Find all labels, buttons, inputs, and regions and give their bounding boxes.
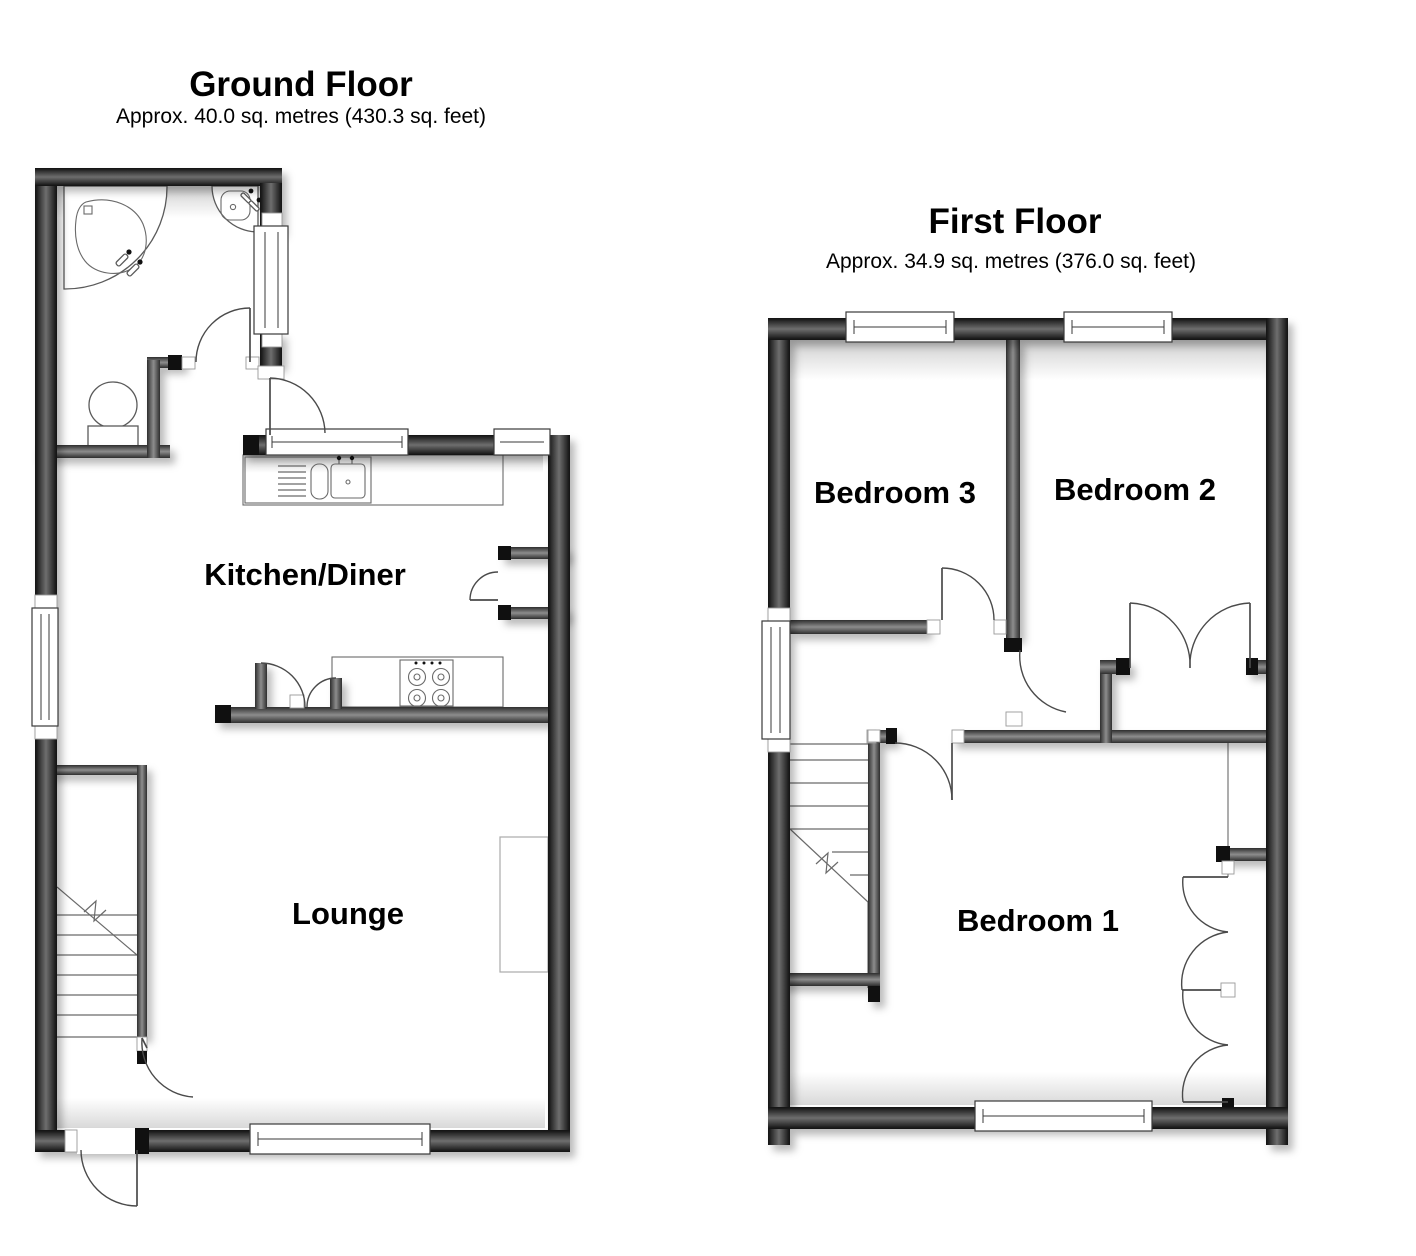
- side-window: [32, 608, 58, 726]
- first-doors: [895, 568, 1250, 1102]
- ground-floor-plan: Ground Floor Approx. 40.0 sq. metres (43…: [32, 65, 570, 1206]
- ground-floor-subtitle: Approx. 40.0 sq. metres (430.3 sq. feet): [116, 105, 486, 128]
- ground-windows: [32, 213, 550, 1154]
- shade-strip: [243, 455, 543, 473]
- bedroom1-door-swing: [895, 743, 952, 800]
- bedroom2-wardrobe-doors: [1130, 603, 1250, 668]
- burner-center: [438, 674, 444, 680]
- window-jamb: [262, 334, 282, 347]
- wall-cap-white: [868, 730, 880, 742]
- lounge-door-swing: [142, 1038, 193, 1097]
- wall-cap: [868, 986, 880, 1002]
- bedroom3-door-swing: [942, 568, 994, 620]
- window-jamb: [768, 739, 790, 752]
- cupboard-door-swing: [470, 572, 498, 600]
- wall-cap: [215, 705, 231, 723]
- door-post: [330, 678, 342, 709]
- window-jamb: [262, 213, 282, 226]
- wall-cap: [886, 728, 897, 744]
- bedroom2-door-swing: [1020, 650, 1066, 712]
- first-floor-subtitle: Approx. 34.9 sq. metres (376.0 sq. feet): [826, 250, 1196, 273]
- door-jamb: [927, 620, 940, 634]
- tap-dot: [249, 189, 254, 194]
- sink-drain: [346, 480, 350, 484]
- bathroom-door-swing: [196, 308, 250, 362]
- ground-wall-details: [65, 355, 511, 1154]
- room-label-bedroom1: Bedroom 1: [957, 903, 1119, 938]
- burner: [433, 669, 450, 686]
- wall-north: [35, 168, 282, 186]
- wall-cap: [1246, 658, 1258, 675]
- wall-wc-east: [147, 360, 160, 458]
- hob-dot: [439, 662, 442, 665]
- fireplace: [500, 837, 548, 972]
- back-door-swing: [270, 378, 325, 433]
- ground-exterior-walls: [35, 168, 570, 1152]
- wall-east: [548, 435, 570, 1152]
- wall-cap: [1116, 658, 1130, 675]
- wall-cap: [498, 605, 511, 620]
- shade-strip: [790, 340, 1266, 380]
- ground-floor-title: Ground Floor: [189, 65, 413, 104]
- window-jamb: [768, 608, 790, 621]
- hob-dot: [415, 662, 418, 665]
- door-jamb: [258, 366, 284, 379]
- wall-kitchen-lounge: [215, 707, 548, 723]
- wall-bed3-bed2: [1006, 340, 1020, 638]
- burner: [409, 669, 426, 686]
- burner-center: [414, 674, 420, 680]
- landing-wall: [780, 973, 880, 986]
- corner-basin: [212, 186, 261, 232]
- front-door-opening: [77, 1128, 135, 1154]
- burner: [409, 690, 426, 707]
- door-jamb: [246, 357, 259, 369]
- door-post: [255, 663, 267, 709]
- shade-strip: [790, 1072, 1266, 1105]
- door-jamb: [1006, 712, 1022, 726]
- toilet-cistern: [88, 426, 138, 447]
- wall-bed1-north: [1112, 730, 1266, 743]
- first-floor-header: First Floor Approx. 34.9 sq. metres (376…: [826, 202, 1196, 273]
- window-jamb: [35, 726, 57, 739]
- window-jamb: [35, 595, 57, 608]
- stair-break-line: [790, 829, 868, 902]
- tap-dot: [137, 259, 142, 264]
- first-wall-details: [867, 620, 1258, 1107]
- stair-break-line: [57, 887, 137, 955]
- room-label-lounge: Lounge: [292, 896, 404, 931]
- tap-dot: [126, 249, 131, 254]
- hob-dot: [423, 662, 426, 665]
- hob-dot: [431, 662, 434, 665]
- hob-counter: [332, 657, 503, 707]
- stair-wall-right: [137, 765, 147, 1037]
- burner: [433, 690, 450, 707]
- tap-dot: [337, 456, 341, 460]
- door-jamb: [182, 357, 195, 369]
- door-jamb: [952, 730, 964, 743]
- room-label-kitchen-diner: Kitchen/Diner: [204, 557, 406, 592]
- ground-staircase: [57, 887, 137, 1037]
- floorplan-canvas: Ground Floor Approx. 40.0 sq. metres (43…: [0, 0, 1416, 1256]
- door-jamb: [994, 620, 1006, 634]
- bath: [64, 186, 167, 289]
- toilet-bowl: [89, 382, 137, 428]
- wall-bed3-south: [790, 620, 927, 634]
- wall-landing-south: [952, 730, 1102, 743]
- first-staircase: [790, 744, 868, 988]
- door-meeting-plate: [290, 695, 304, 708]
- counter: [332, 657, 503, 707]
- room-label-bedroom3: Bedroom 3: [814, 475, 976, 510]
- first-floor-title: First Floor: [928, 202, 1101, 241]
- door-jamb: [1222, 861, 1234, 874]
- burner-center: [414, 695, 420, 701]
- hob: [400, 660, 453, 706]
- wall-cap: [498, 546, 511, 560]
- bathroom-window: [254, 226, 288, 334]
- stair-wall: [868, 730, 880, 1002]
- room-label-bedroom2: Bedroom 2: [1054, 472, 1216, 507]
- tap-dot: [350, 456, 354, 460]
- first-floor-plan: First Floor Approx. 34.9 sq. metres (376…: [762, 202, 1288, 1145]
- wall-east: [1266, 318, 1288, 1145]
- wall-cap: [1216, 846, 1230, 862]
- wardrobe-post: [1221, 983, 1235, 997]
- stair-break-zigzag: [84, 901, 106, 921]
- wall-cap: [243, 435, 259, 455]
- ground-room-labels: Kitchen/Diner Lounge: [204, 557, 406, 931]
- toilet: [88, 382, 138, 447]
- burner-center: [438, 695, 444, 701]
- wall-cap: [168, 355, 182, 370]
- front-door-swing: [81, 1150, 137, 1206]
- landing-window: [762, 621, 790, 739]
- door-jamb: [65, 1130, 77, 1152]
- wall-cap: [1004, 638, 1022, 652]
- ground-floor-header: Ground Floor Approx. 40.0 sq. metres (43…: [116, 65, 486, 128]
